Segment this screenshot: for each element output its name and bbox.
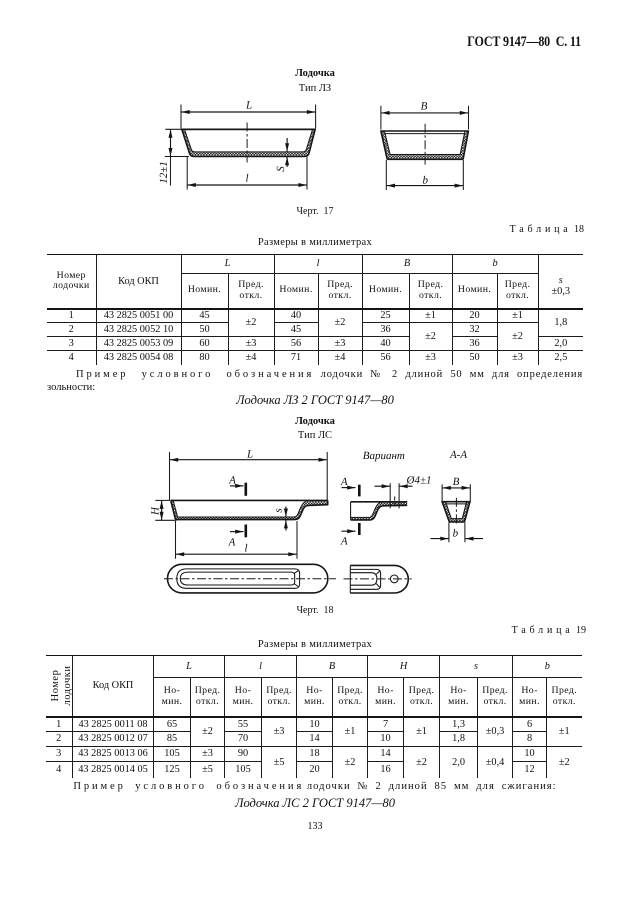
- svg-text:А-А: А-А: [449, 449, 467, 461]
- svg-text:l: l: [244, 543, 247, 555]
- svg-text:H: H: [149, 506, 161, 516]
- svg-text:A: A: [340, 476, 348, 488]
- svg-text:L: L: [246, 449, 253, 461]
- svg-text:A: A: [340, 536, 348, 548]
- svg-text:b: b: [453, 527, 459, 539]
- svg-text:s: s: [273, 508, 285, 512]
- svg-text:A: A: [228, 475, 236, 487]
- svg-text:B: B: [453, 476, 460, 488]
- svg-text:A: A: [228, 537, 236, 549]
- svg-text:Ø4±1: Ø4±1: [406, 475, 432, 487]
- svg-text:Вариант: Вариант: [363, 450, 405, 462]
